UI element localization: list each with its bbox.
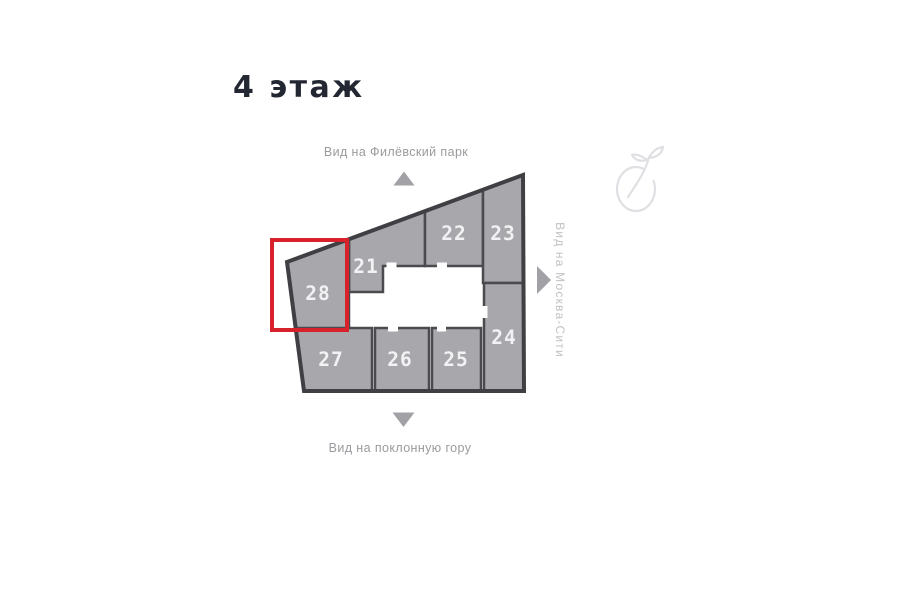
- door-gaps: [387, 263, 488, 332]
- door-gap: [481, 306, 488, 318]
- unit-21-label[interactable]: 21: [353, 255, 378, 278]
- arrow-right-icon: [537, 266, 551, 294]
- door-gap: [387, 263, 397, 270]
- door-gap: [437, 325, 446, 332]
- view-label-bottom: Вид на поклонную гору: [329, 441, 472, 455]
- logo-watermark-icon: [617, 147, 663, 211]
- unit-25-label[interactable]: 25: [443, 348, 468, 371]
- unit-23-label[interactable]: 23: [490, 222, 515, 245]
- floor-plan: 21 22 23 24 25 26 27 28 Вид на Филёвский…: [0, 0, 900, 604]
- unit-28-label[interactable]: 28: [305, 282, 330, 305]
- arrow-up-icon: [394, 172, 415, 186]
- door-gap: [437, 263, 447, 270]
- unit-27-label[interactable]: 27: [318, 348, 343, 371]
- unit-24-label[interactable]: 24: [491, 326, 516, 349]
- door-gap: [388, 325, 398, 332]
- unit-26-label[interactable]: 26: [387, 348, 412, 371]
- floor-plan-page: 4 этаж 21 22 23: [0, 0, 900, 604]
- view-label-right: Вид на Москва-Сити: [553, 222, 567, 358]
- arrow-down-icon: [393, 413, 415, 428]
- view-label-top: Вид на Филёвский парк: [324, 145, 468, 159]
- unit-22-label[interactable]: 22: [441, 222, 466, 245]
